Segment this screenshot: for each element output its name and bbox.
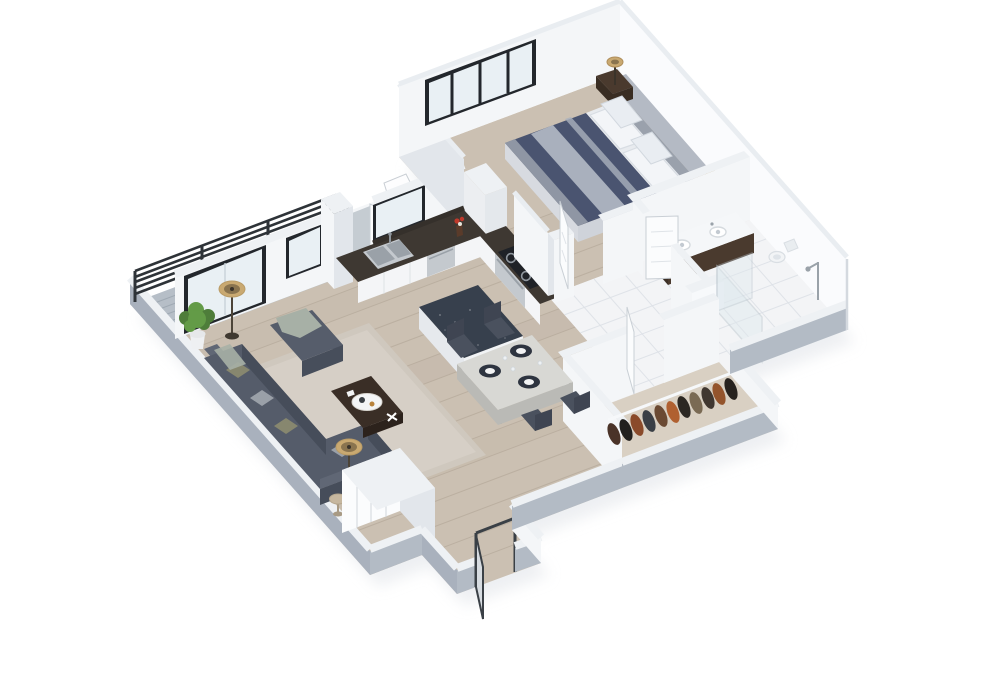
coffee-table-tray <box>352 394 382 411</box>
wine-glass <box>511 367 515 371</box>
floor-plan-svg <box>0 0 1000 700</box>
wine-glass <box>503 356 507 360</box>
wine-glass <box>538 361 542 365</box>
wall-column-tall <box>321 192 353 289</box>
floor-plan-render <box>0 0 1000 700</box>
wall-bedroom-hall-b <box>598 202 638 284</box>
